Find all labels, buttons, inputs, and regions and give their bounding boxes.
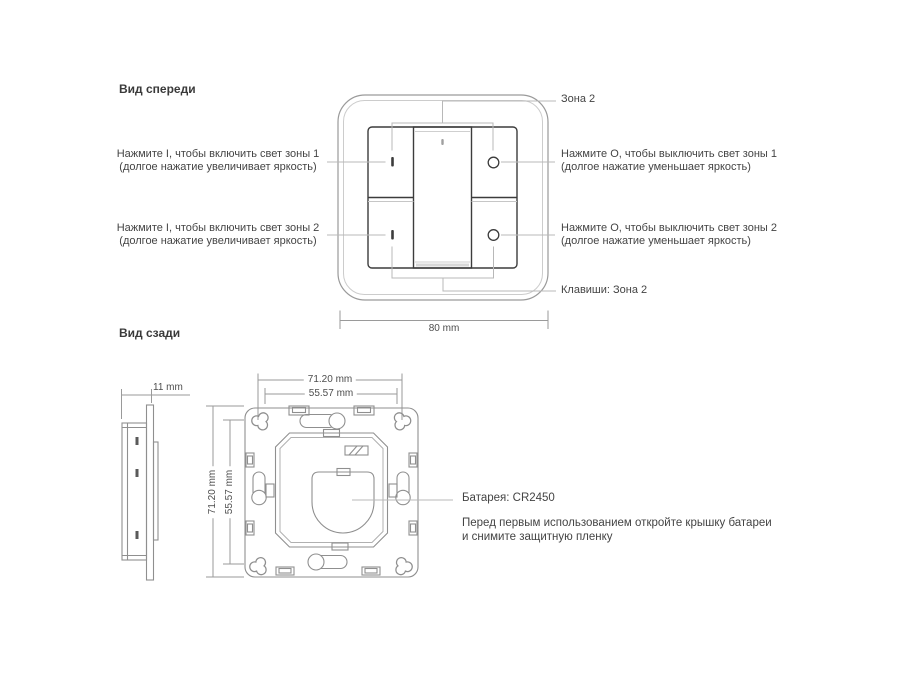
dim-11mm-label: 11 mm	[153, 383, 183, 393]
keyhole-icon	[250, 411, 272, 433]
callout-on-zone1-line2: (долгое нажатие увеличивает яркость)	[110, 161, 326, 174]
callout-on-zone2: Нажмите I, чтобы включить свет зоны 2 (д…	[110, 222, 326, 247]
callout-on-zone1: Нажмите I, чтобы включить свет зоны 1 (д…	[110, 148, 326, 173]
dim-80mm-label: 80 mm	[429, 324, 460, 334]
slot-left	[252, 472, 266, 505]
callout-off-zone1: Нажмите O, чтобы выключить свет зоны 1 (…	[561, 148, 777, 173]
battery-label: Батарея: CR2450	[462, 492, 555, 504]
keyhole-icon	[390, 411, 412, 433]
side-clip	[136, 531, 139, 539]
side-clip	[136, 469, 139, 477]
keyhole-icon	[248, 554, 270, 576]
battery-note-line1: Перед первым использованием откройте кры…	[462, 517, 772, 531]
mark-on-zone1	[391, 157, 394, 167]
callout-on-zone2-line2: (долгое нажатие увеличивает яркость)	[110, 235, 326, 248]
side-profile	[122, 405, 158, 580]
dim-inner-width-label: 55.57 mm	[305, 388, 357, 400]
callout-on-zone2-line1: Нажмите I, чтобы включить свет зоны 2	[110, 222, 326, 235]
callout-off-zone2-line2: (долгое нажатие уменьшает яркость)	[561, 235, 777, 248]
dim-inner-height-label: 55.57 mm	[224, 466, 236, 518]
rocker-indicator-mark	[441, 139, 443, 145]
dim-11mm-line	[122, 389, 191, 419]
button-dividers	[368, 198, 517, 202]
back-view-diagram	[122, 374, 454, 581]
dim-mount-height-label: 71.20 mm	[207, 466, 219, 518]
mark-off-zone1	[488, 157, 499, 168]
battery-cover	[312, 469, 374, 534]
mark-off-zone2	[488, 230, 499, 241]
callout-off-zone2-line1: Нажмите O, чтобы выключить свет зоны 2	[561, 222, 777, 235]
battery-note-line2: и снимите защитную пленку	[462, 531, 772, 545]
mark-on-zone2	[391, 230, 394, 240]
front-view-diagram	[327, 95, 556, 329]
battery-note: Перед первым использованием откройте кры…	[462, 517, 772, 544]
inner-frame-octagon	[266, 430, 397, 551]
callout-on-zone1-line1: Нажмите I, чтобы включить свет зоны 1	[110, 148, 326, 161]
rocker-bottom-band	[416, 264, 469, 267]
callout-off-zone1-line2: (долгое нажатие уменьшает яркость)	[561, 161, 777, 174]
dim-mount-width-label: 71.20 mm	[304, 374, 356, 386]
front-view-title: Вид спереди	[119, 82, 196, 96]
callout-off-zone2: Нажмите O, чтобы выключить свет зоны 2 (…	[561, 222, 777, 247]
front-center-rocker	[414, 127, 472, 268]
back-view-title: Вид сзади	[119, 326, 180, 340]
keyhole-icon	[392, 554, 414, 576]
mounting-plate	[245, 406, 418, 577]
slot-bottom	[308, 554, 347, 570]
callout-off-zone1-line1: Нажмите O, чтобы выключить свет зоны 1	[561, 148, 777, 161]
vent-hatch	[345, 446, 368, 455]
callout-zone2: Зона 2	[561, 93, 595, 106]
side-clip	[136, 437, 139, 445]
callout-keys-zone2: Клавиши: Зона 2	[561, 284, 647, 297]
